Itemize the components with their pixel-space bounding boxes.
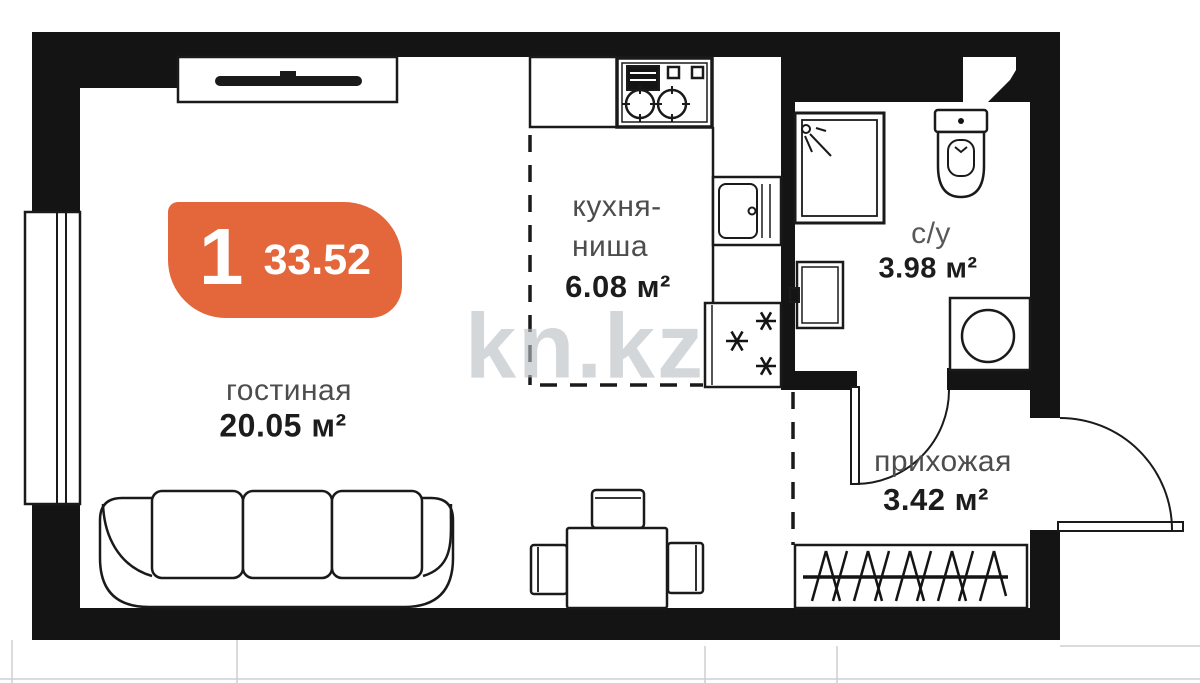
kitchen-area: 6.08 м² (565, 269, 671, 305)
floor-plan-drawing (0, 0, 1200, 683)
entrance-door-icon (1058, 418, 1183, 531)
fridge-icon (705, 303, 781, 387)
tv-console-icon (178, 57, 397, 102)
window-icon (25, 212, 80, 504)
bathroom-label: с/у (911, 217, 951, 251)
vent-shaft-icon (963, 57, 1030, 102)
apartment-badge: 1 33.52 (168, 202, 402, 318)
dining-table-icon (531, 490, 703, 608)
living-room-label: гостиная (226, 374, 352, 408)
stove-icon (617, 58, 712, 127)
kitchen-label-line1: кухня- (572, 190, 661, 224)
kitchen-label-line2: ниша (572, 230, 648, 264)
washbasin-icon (790, 262, 843, 328)
neighbor-outline-lines (0, 640, 1200, 683)
hallway-area: 3.42 м² (883, 482, 989, 518)
washing-machine-icon (950, 298, 1030, 370)
sofa-icon (100, 491, 453, 607)
living-room-area: 20.05 м² (219, 408, 346, 445)
hallway-label: прихожая (874, 445, 1012, 479)
kitchen-sink-icon (713, 177, 781, 245)
shower-icon (795, 113, 884, 223)
toilet-icon (935, 110, 987, 197)
apartment-total-area: 33.52 (263, 239, 371, 282)
floor-plan: kn.kz 1 33.52 гостиная 20.05 м² кухня- н… (0, 0, 1200, 683)
apartment-rooms-number: 1 (199, 217, 244, 297)
wardrobe-icon (795, 545, 1027, 608)
bathroom-area: 3.98 м² (878, 253, 977, 286)
